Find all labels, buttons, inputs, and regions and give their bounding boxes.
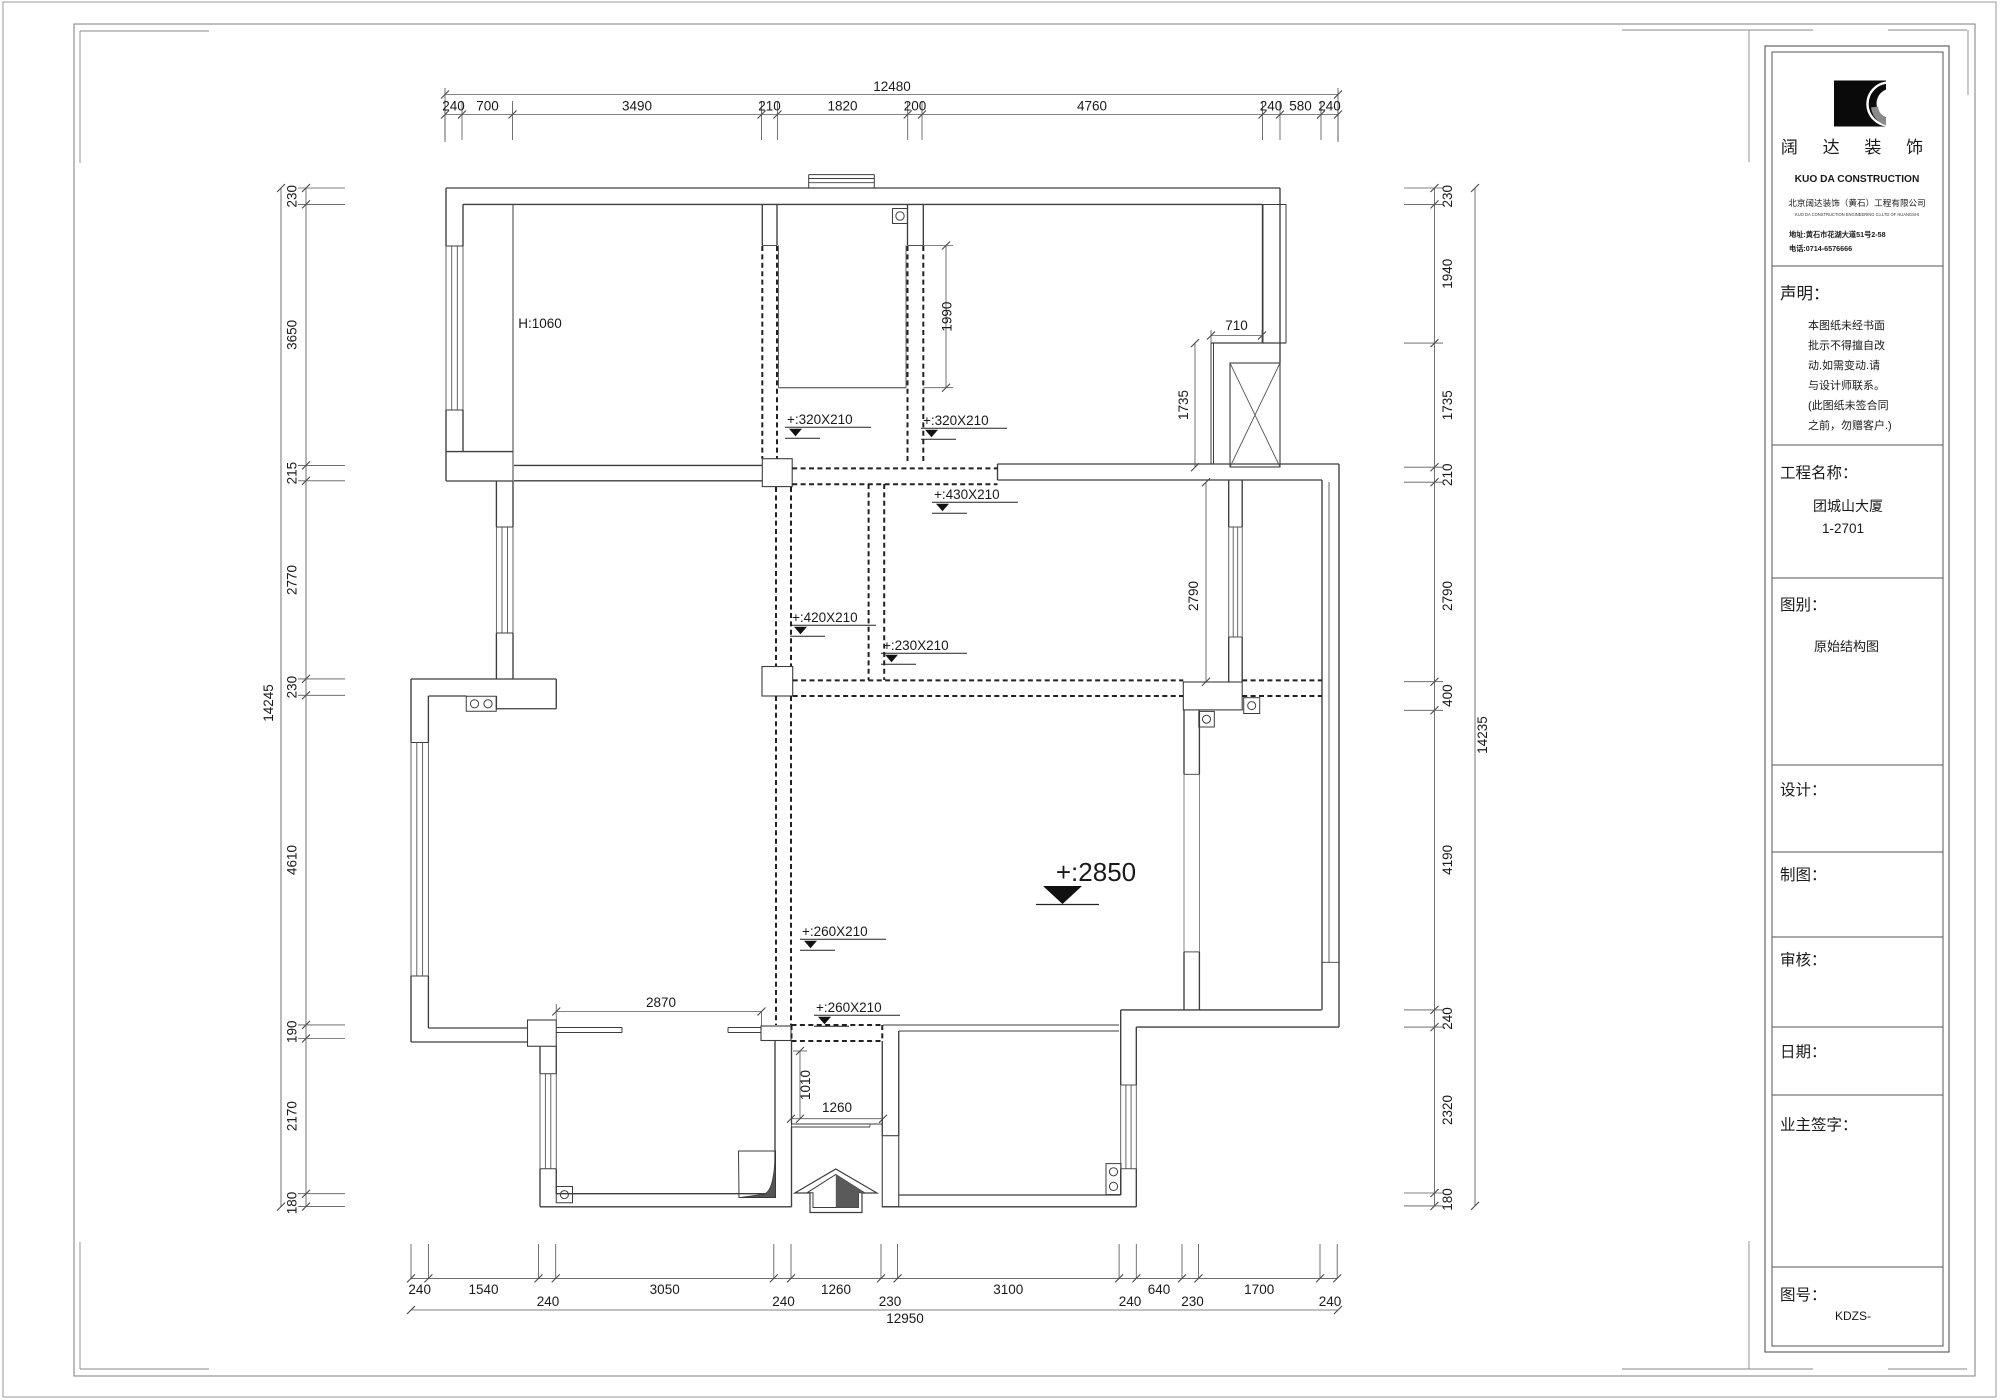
svg-text:640: 640 (1148, 1282, 1171, 1297)
svg-text:批示不得擅自改: 批示不得擅自改 (1808, 338, 1885, 352)
svg-text:1940: 1940 (1440, 259, 1455, 289)
svg-text:3100: 3100 (993, 1282, 1023, 1297)
svg-text:240: 240 (1319, 1294, 1342, 1309)
svg-text:180: 180 (1440, 1188, 1455, 1211)
svg-text:12480: 12480 (873, 79, 911, 94)
svg-text:团城山大厦: 团城山大厦 (1813, 498, 1883, 514)
svg-text:3650: 3650 (285, 320, 300, 350)
svg-text:动.如需变动.请: 动.如需变动.请 (1808, 358, 1880, 372)
svg-text:3050: 3050 (650, 1282, 680, 1297)
svg-text:1010: 1010 (798, 1070, 813, 1100)
svg-text:KDZS-: KDZS- (1835, 1309, 1871, 1323)
svg-text:+:320X210: +:320X210 (923, 413, 989, 428)
svg-text:业主签字：: 业主签字： (1780, 1116, 1858, 1134)
svg-text:KUO DA CONSTRUCTION ENGINEERIN: KUO DA CONSTRUCTION ENGINEERING Co.LTD O… (1795, 212, 1919, 217)
svg-text:240: 240 (537, 1294, 560, 1309)
svg-text:240: 240 (408, 1282, 431, 1297)
svg-text:710: 710 (1225, 318, 1248, 333)
svg-text:240: 240 (1119, 1294, 1142, 1309)
svg-text:电话:0714-6576666: 电话:0714-6576666 (1789, 244, 1852, 253)
svg-text:230: 230 (1440, 185, 1455, 208)
svg-text:230: 230 (879, 1294, 902, 1309)
svg-text:+:230X210: +:230X210 (883, 638, 949, 653)
svg-text:210: 210 (758, 99, 781, 114)
svg-text:1260: 1260 (822, 1100, 852, 1115)
svg-text:制图：: 制图： (1780, 866, 1827, 884)
svg-text:240: 240 (1318, 99, 1341, 114)
svg-text:本图纸未经书面: 本图纸未经书面 (1808, 318, 1885, 332)
svg-text:2770: 2770 (285, 565, 300, 595)
svg-text:图别：: 图别： (1780, 596, 1827, 614)
svg-text:+:260X210: +:260X210 (802, 924, 868, 939)
svg-text:240: 240 (442, 99, 465, 114)
svg-text:KUO DA CONSTRUCTION: KUO DA CONSTRUCTION (1795, 174, 1920, 185)
svg-text:图号：: 图号： (1780, 1286, 1827, 1304)
svg-text:180: 180 (285, 1192, 300, 1215)
svg-text:1735: 1735 (1440, 390, 1455, 420)
svg-text:设计：: 设计： (1780, 781, 1827, 799)
svg-text:240: 240 (772, 1294, 795, 1309)
svg-text:1990: 1990 (940, 302, 955, 332)
svg-text:4190: 4190 (1440, 845, 1455, 875)
svg-text:+:430X210: +:430X210 (934, 487, 1000, 502)
svg-text:工程名称：: 工程名称： (1780, 464, 1858, 482)
svg-text:230: 230 (1181, 1294, 1204, 1309)
svg-text:230: 230 (285, 676, 300, 699)
svg-text:(此图纸未签合同: (此图纸未签合同 (1808, 398, 1889, 412)
svg-text:2790: 2790 (1186, 581, 1201, 611)
svg-text:2790: 2790 (1440, 581, 1455, 611)
svg-text:与设计师联系。: 与设计师联系。 (1808, 379, 1885, 392)
svg-text:400: 400 (1440, 684, 1455, 707)
svg-text:210: 210 (1440, 463, 1455, 486)
svg-text:2320: 2320 (1440, 1095, 1455, 1125)
svg-text:2170: 2170 (285, 1101, 300, 1131)
svg-text:1540: 1540 (468, 1282, 498, 1297)
svg-text:+:260X210: +:260X210 (816, 1000, 882, 1015)
svg-text:1700: 1700 (1244, 1282, 1274, 1297)
svg-text:14245: 14245 (261, 684, 276, 722)
svg-text:580: 580 (1289, 99, 1312, 114)
svg-text:230: 230 (285, 185, 300, 208)
svg-text:240: 240 (1440, 1007, 1455, 1030)
svg-text:4760: 4760 (1077, 99, 1107, 114)
svg-text:之前，勿赠客户.): 之前，勿赠客户.) (1808, 418, 1892, 432)
svg-text:+:320X210: +:320X210 (787, 412, 853, 427)
svg-text:声明：: 声明： (1780, 284, 1830, 303)
svg-text:700: 700 (476, 99, 499, 114)
svg-text:215: 215 (285, 462, 300, 485)
svg-text:1260: 1260 (821, 1282, 851, 1297)
svg-text:200: 200 (904, 99, 927, 114)
svg-text:1735: 1735 (1176, 390, 1191, 420)
svg-text:190: 190 (285, 1020, 300, 1043)
svg-text:12950: 12950 (886, 1311, 924, 1326)
svg-text:+:420X210: +:420X210 (792, 610, 858, 625)
svg-text:+:2850: +:2850 (1056, 857, 1136, 887)
svg-text:4610: 4610 (285, 845, 300, 875)
svg-text:日期：: 日期： (1780, 1043, 1827, 1061)
svg-text:14235: 14235 (1475, 716, 1490, 754)
svg-text:H:1060: H:1060 (518, 316, 562, 331)
svg-text:240: 240 (1260, 99, 1283, 114)
svg-text:阔 达 装 饰: 阔 达 装 饰 (1781, 138, 1933, 157)
svg-text:地址:黄石市花湖大道51号2-58: 地址:黄石市花湖大道51号2-58 (1789, 230, 1886, 239)
svg-text:1-2701: 1-2701 (1822, 521, 1864, 536)
svg-text:北京阔达装饰（黄石）工程有限公司: 北京阔达装饰（黄石）工程有限公司 (1788, 197, 1926, 208)
svg-text:原始结构图: 原始结构图 (1814, 639, 1879, 654)
svg-text:3490: 3490 (622, 99, 652, 114)
svg-text:1820: 1820 (827, 99, 857, 114)
svg-text:2870: 2870 (646, 995, 676, 1010)
svg-text:审核：: 审核： (1780, 951, 1827, 969)
